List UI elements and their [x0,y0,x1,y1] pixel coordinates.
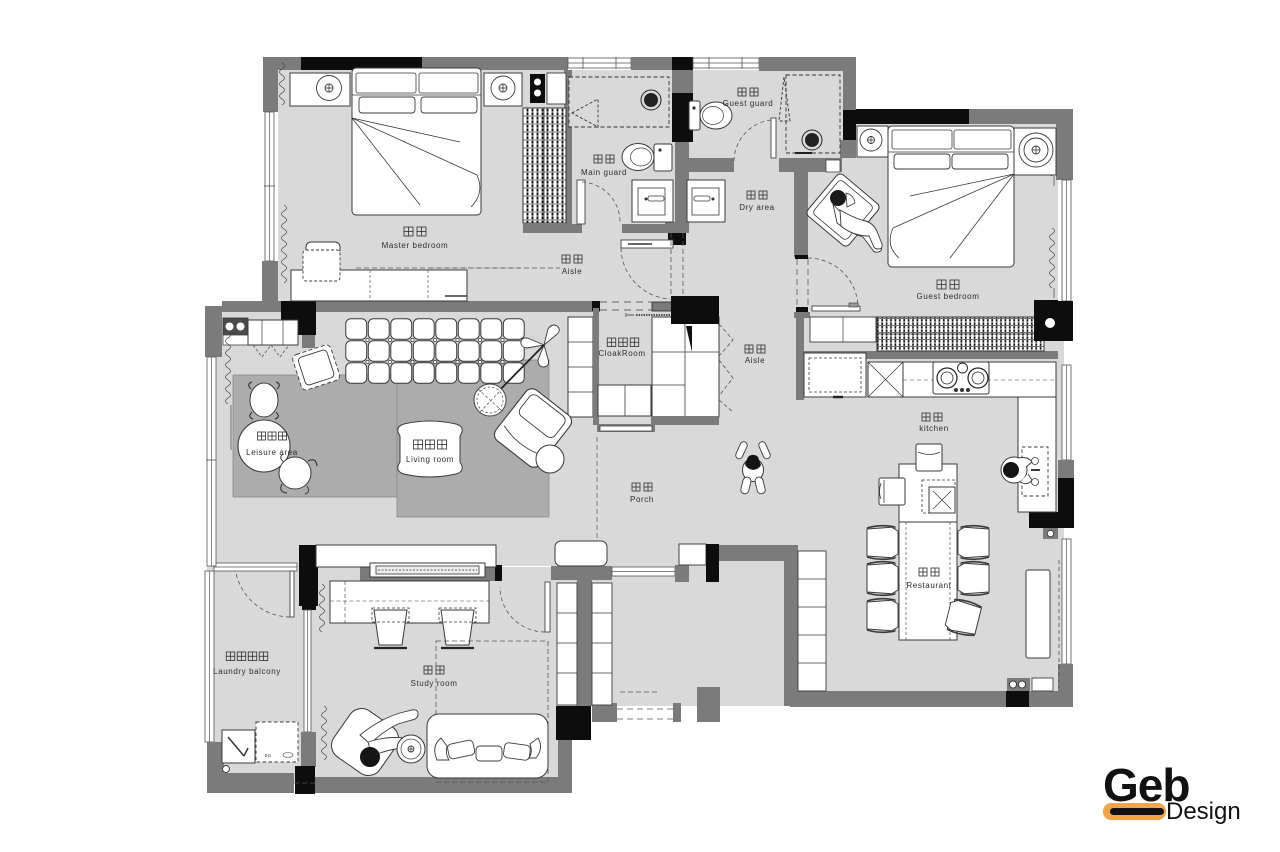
svg-text:Restaurant: Restaurant [906,581,951,590]
svg-text:CloakRoom: CloakRoom [598,349,645,358]
svg-text:Porch: Porch [630,495,654,504]
svg-text:Aisle: Aisle [745,356,765,365]
svg-text:Guest guard: Guest guard [723,99,774,108]
svg-text:Leisure area: Leisure area [246,448,298,457]
svg-text:Laundry balcony: Laundry balcony [213,667,281,676]
svg-text:Living room: Living room [406,455,454,464]
svg-text:Guest bedroom: Guest bedroom [917,292,980,301]
svg-text:oo: oo [265,753,272,759]
svg-text:Design: Design [1166,798,1241,825]
svg-text:kitchen: kitchen [919,424,949,433]
svg-text:Dry area: Dry area [739,203,774,212]
svg-text:Master bedroom: Master bedroom [382,241,449,250]
svg-text:Study room: Study room [411,679,458,688]
svg-text:Aisle: Aisle [562,267,582,276]
svg-text:Main guard: Main guard [581,168,627,177]
